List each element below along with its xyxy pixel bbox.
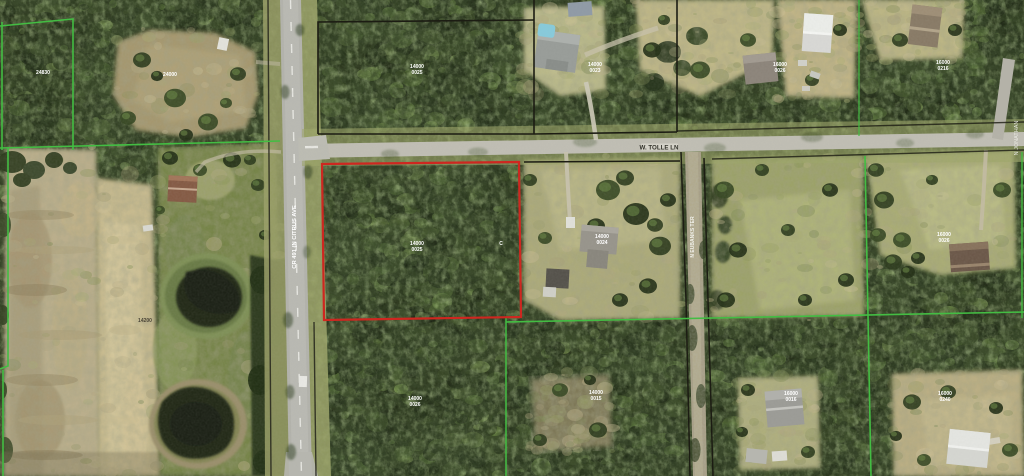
svg-text:0015: 0015	[590, 396, 601, 402]
svg-text:0025: 0025	[411, 70, 422, 76]
svg-text:0024: 0024	[596, 240, 607, 246]
svg-text:0026: 0026	[938, 238, 949, 244]
svg-text:0026: 0026	[409, 402, 420, 408]
svg-text:C: C	[499, 241, 503, 247]
svg-text:24830: 24830	[36, 70, 50, 76]
svg-text:0016: 0016	[785, 397, 796, 403]
svg-text:0216: 0216	[937, 66, 948, 72]
svg-text:CR 491 (N CITRUS AVE: CR 491 (N CITRUS AVE	[292, 205, 298, 269]
svg-text:0240: 0240	[939, 397, 950, 403]
svg-text:24000: 24000	[163, 72, 177, 78]
svg-text:N EUBANKS TER: N EUBANKS TER	[690, 216, 696, 258]
svg-text:W. TOLLE LN: W. TOLLE LN	[639, 145, 679, 152]
svg-text:0026: 0026	[774, 68, 785, 74]
svg-text:0025: 0025	[411, 247, 422, 253]
svg-text:14200: 14200	[138, 318, 152, 324]
svg-text:0023: 0023	[589, 68, 600, 74]
svg-text:N JONATHAN: N JONATHAN	[1014, 121, 1020, 156]
